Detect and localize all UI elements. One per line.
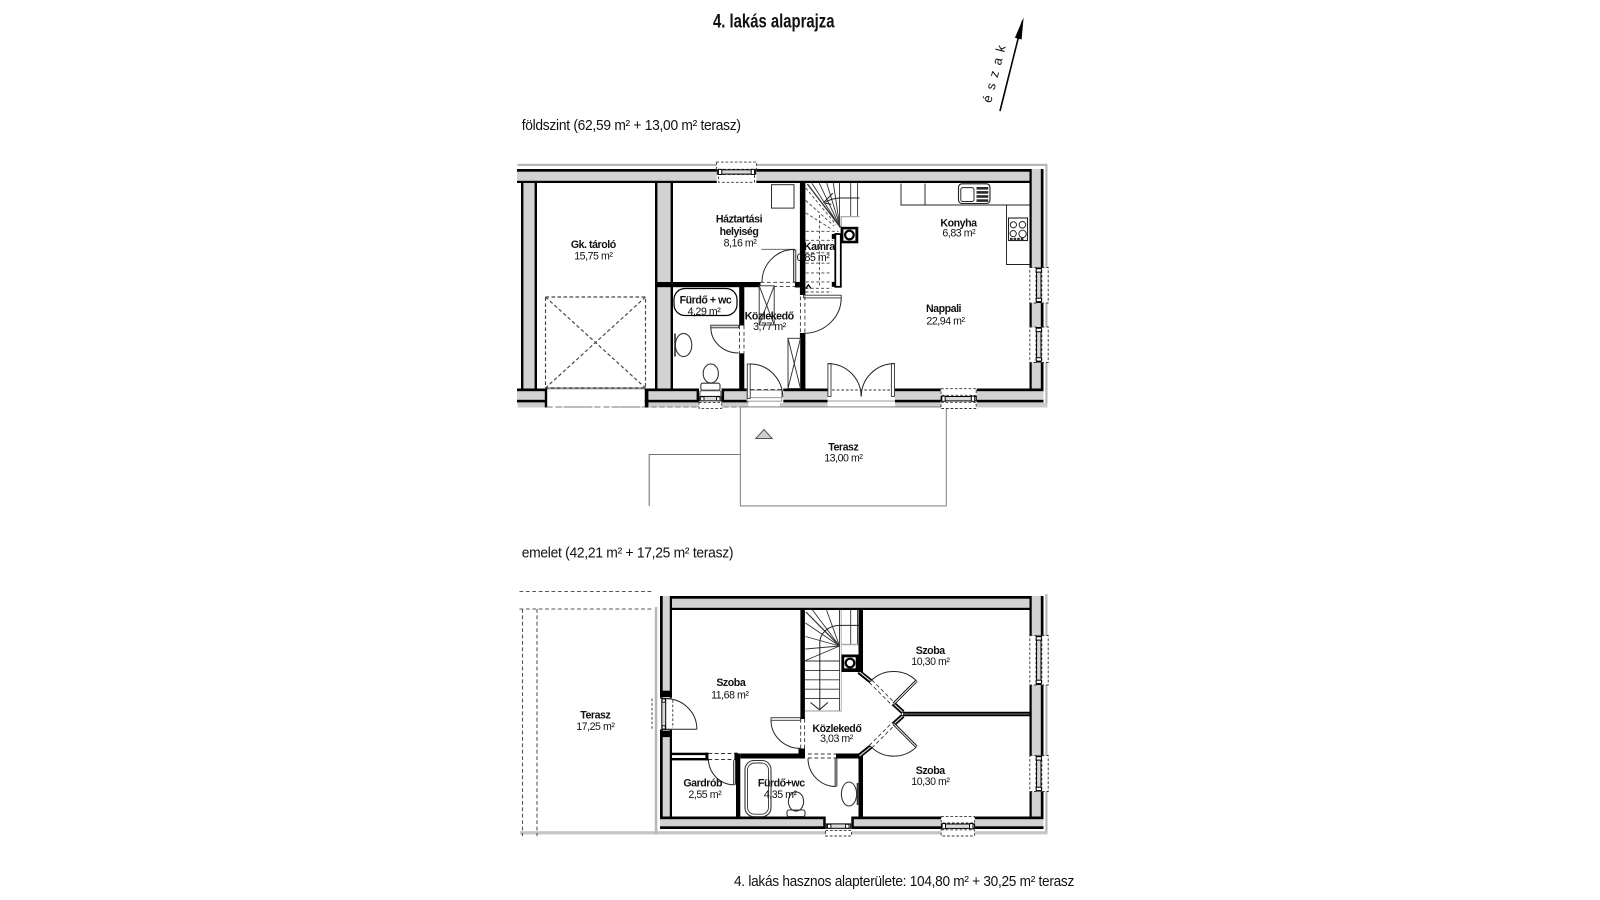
svg-text:Szoba: Szoba: [716, 677, 746, 689]
svg-text:földszint (62,59 m² + 13,00 m²: földszint (62,59 m² + 13,00 m² terasz): [522, 118, 741, 134]
svg-text:Gk. tároló: Gk. tároló: [571, 239, 617, 251]
svg-text:10,30 m²: 10,30 m²: [911, 776, 950, 788]
svg-text:Nappali: Nappali: [926, 303, 962, 315]
svg-text:3,03 m²: 3,03 m²: [820, 733, 854, 745]
svg-text:8,16 m²: 8,16 m²: [724, 238, 758, 250]
svg-text:Fürdő+wc: Fürdő+wc: [758, 778, 805, 790]
svg-text:11,68 m²: 11,68 m²: [711, 690, 749, 702]
svg-text:22,94 m²: 22,94 m²: [926, 316, 965, 328]
svg-text:4. lakás alaprajza: 4. lakás alaprajza: [713, 11, 835, 33]
svg-text:13,00 m²: 13,00 m²: [824, 453, 863, 465]
svg-text:17,25 m²: 17,25 m²: [576, 721, 615, 733]
svg-text:Fürdő + wc: Fürdő + wc: [680, 294, 732, 306]
svg-text:3,77 m²: 3,77 m²: [753, 321, 787, 333]
svg-text:Háztartási: Háztartási: [716, 214, 763, 226]
svg-text:15,75 m²: 15,75 m²: [574, 251, 613, 263]
svg-text:Terasz: Terasz: [828, 442, 858, 454]
svg-text:4,29 m²: 4,29 m²: [688, 306, 722, 318]
svg-text:2,55 m²: 2,55 m²: [688, 789, 722, 801]
svg-text:10,30 m²: 10,30 m²: [911, 656, 950, 668]
svg-text:6,83 m²: 6,83 m²: [942, 227, 976, 239]
svg-text:helyiség: helyiség: [720, 226, 759, 238]
svg-text:4. lakás hasznos alapterülete:: 4. lakás hasznos alapterülete: 104,80 m²…: [734, 874, 1074, 890]
svg-text:4,35 m²: 4,35 m²: [764, 789, 798, 801]
svg-text:Gardrób: Gardrób: [683, 778, 723, 790]
svg-text:Terasz: Terasz: [580, 710, 610, 722]
svg-text:emelet (42,21 m² + 17,25 m² te: emelet (42,21 m² + 17,25 m² terasz): [522, 546, 734, 562]
